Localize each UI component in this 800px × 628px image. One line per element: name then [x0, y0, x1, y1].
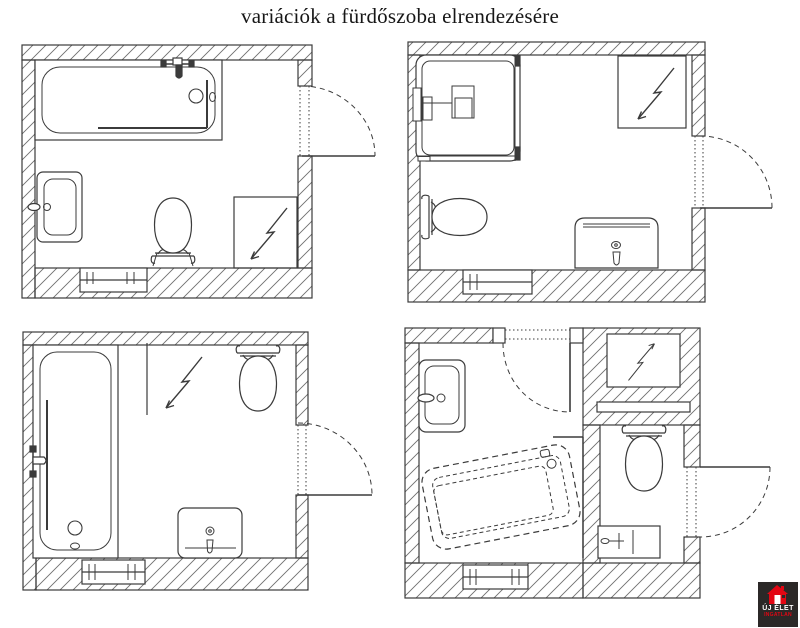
- door-swing: [695, 136, 772, 208]
- mirror: [607, 334, 680, 387]
- washbasin: [178, 508, 242, 558]
- shelf: [597, 402, 690, 412]
- mirror: [147, 343, 202, 415]
- washbasin: [418, 360, 465, 432]
- entry-door-swing: [503, 330, 570, 412]
- toilet: [622, 426, 666, 491]
- floorplan-variation-2: [408, 42, 772, 302]
- floorplan-grid: [0, 0, 800, 628]
- hand-basin: [598, 526, 660, 558]
- window: [82, 560, 145, 584]
- toilet: [422, 195, 487, 239]
- floorplan-variation-3: [23, 332, 372, 590]
- wc-door-swing: [687, 467, 770, 537]
- door-swing: [298, 423, 372, 495]
- mirror: [618, 56, 686, 128]
- floorplan-variation-4: [405, 328, 770, 598]
- window: [463, 270, 532, 294]
- toilet: [151, 198, 195, 266]
- floorplan-variation-1: [22, 45, 375, 298]
- toilet: [236, 346, 280, 411]
- house-icon: [767, 585, 789, 604]
- bathtub: [33, 345, 118, 558]
- mirror: [234, 197, 297, 268]
- shower-cabin: [413, 55, 520, 161]
- step-line: [553, 437, 583, 558]
- window: [463, 565, 528, 589]
- washbasin: [28, 172, 82, 242]
- door-swing: [300, 86, 375, 156]
- vanity-basin: [575, 218, 658, 268]
- corner-bathtub: [420, 442, 583, 551]
- floorplan-sheet: variációk a fürdőszoba elrendezésére: [0, 0, 800, 628]
- logo-text-line1: ÚJ ÉLET: [762, 605, 794, 612]
- window: [80, 268, 147, 292]
- agency-logo: ÚJ ÉLET INGATLAN: [758, 582, 798, 627]
- logo-text-line2: INGATLAN: [764, 612, 792, 618]
- bathtub: [35, 60, 222, 140]
